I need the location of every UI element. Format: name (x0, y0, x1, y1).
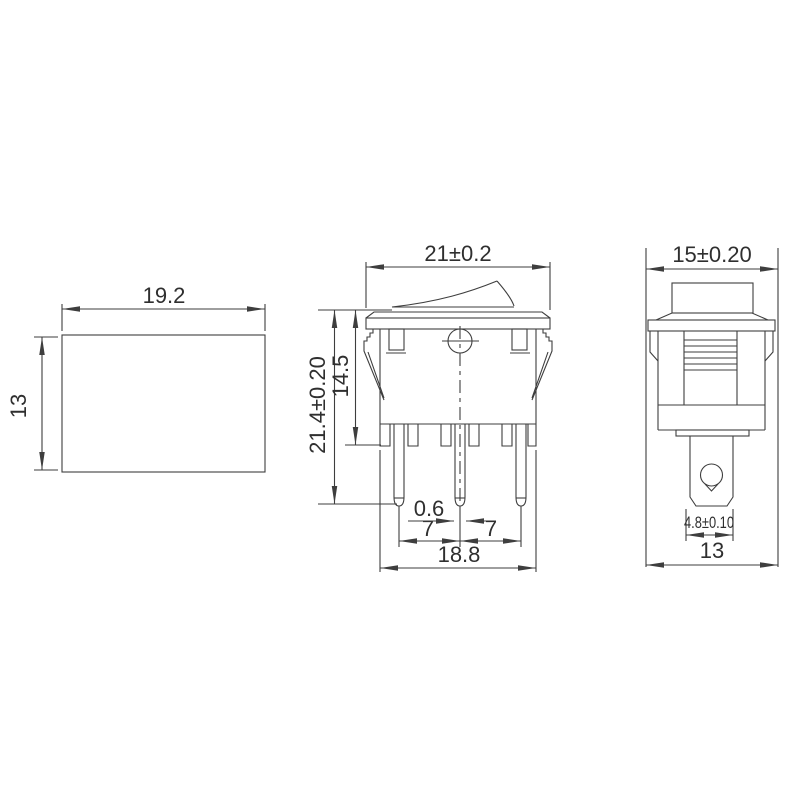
dim-label-terminal-width: 4.8±0.10 (684, 513, 734, 532)
terminal-hole (701, 464, 723, 486)
latch-window-left (389, 329, 404, 350)
terminal-pin-right (516, 424, 526, 506)
front-view (318, 262, 552, 572)
dim-label-side-top-width: 15±0.20 (672, 242, 751, 267)
dim-label-front-top-width: 21±0.2 (424, 241, 491, 266)
rocker-knob-side (672, 283, 753, 313)
dim-label-pitch-left: 7 (422, 516, 434, 541)
latch-window-right (512, 329, 527, 350)
terminal-blade (690, 436, 733, 506)
flange-bevel (656, 313, 768, 320)
flange (648, 320, 775, 331)
top-view (34, 304, 265, 472)
switch-body (380, 329, 536, 424)
dim-label-overall-height: 21.4±0.20 (305, 356, 330, 454)
dim-label-cutout-width: 19.2 (143, 283, 186, 308)
center-panel (684, 331, 737, 405)
dim-label-pitch-right: 7 (485, 516, 497, 541)
base-plate (676, 430, 749, 436)
base-teeth (380, 424, 536, 446)
dim-label-side-bottom-width: 13 (700, 538, 724, 563)
rocker-switch-technical-drawing: 19.2 13 21±0.2 21.4±0.20 14.5 0.6 7 7 18… (0, 0, 800, 800)
dim-label-upper-height: 14.5 (328, 355, 353, 398)
drawing-canvas: 19.2 13 21±0.2 21.4±0.20 14.5 0.6 7 7 18… (0, 0, 800, 800)
panel-ribs (684, 340, 737, 370)
flange (366, 318, 550, 329)
rocker-actuator (392, 281, 514, 307)
dimension-labels: 19.2 13 21±0.2 21.4±0.20 14.5 0.6 7 7 18… (6, 241, 752, 567)
terminal-pin-left (394, 424, 404, 506)
cutout-rectangle (62, 335, 265, 472)
flange-bevel (366, 312, 550, 318)
dim-label-pin-span: 18.8 (438, 542, 481, 567)
mounting-clip-right (532, 329, 552, 400)
dim-label-cutout-height: 13 (6, 394, 31, 418)
mounting-clip-left (364, 329, 384, 400)
